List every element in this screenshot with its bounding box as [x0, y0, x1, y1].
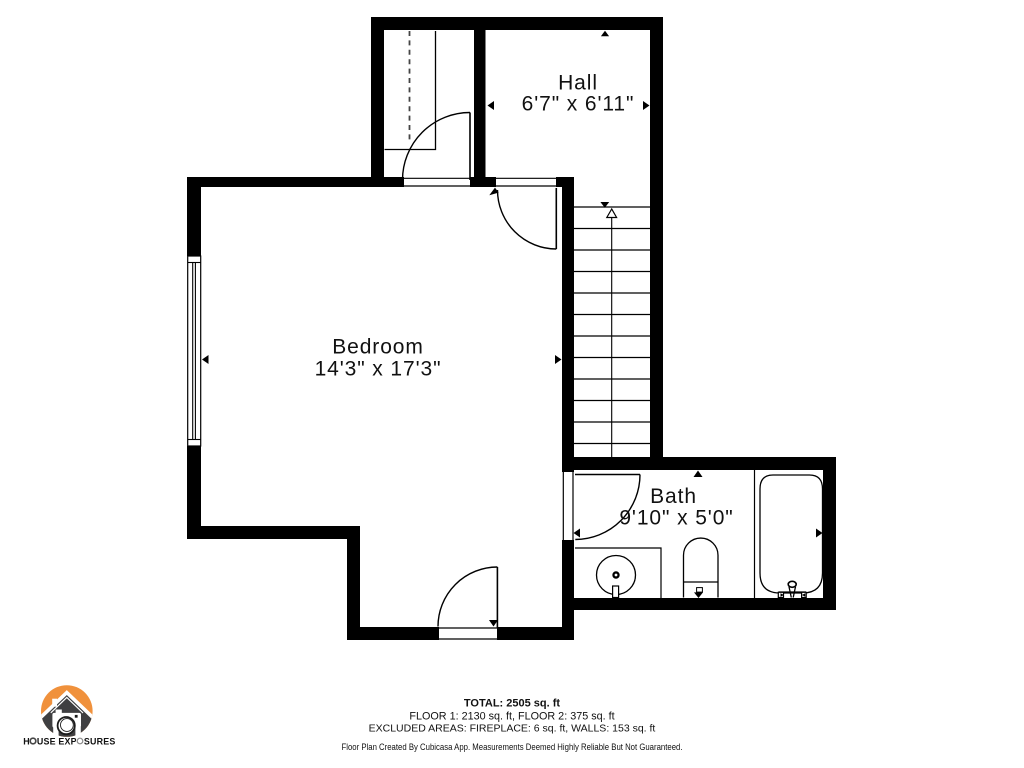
svg-text:Hall: Hall — [558, 72, 598, 95]
svg-text:FLOOR 1: 2130 sq. ft, FLOOR 2:: FLOOR 1: 2130 sq. ft, FLOOR 2: 375 sq. f… — [409, 710, 614, 722]
svg-text:Bedroom: Bedroom — [332, 336, 424, 359]
svg-text:EXCLUDED AREAS: FIREPLACE: 6 s: EXCLUDED AREAS: FIREPLACE: 6 sq. ft, WAL… — [369, 722, 656, 734]
svg-text:9'10" x 5'0": 9'10" x 5'0" — [619, 507, 733, 530]
svg-text:Bath: Bath — [650, 485, 697, 508]
svg-text:TOTAL: 2505 sq. ft: TOTAL: 2505 sq. ft — [464, 698, 561, 710]
svg-text:14'3" x 17'3": 14'3" x 17'3" — [315, 357, 442, 380]
svg-text:Floor Plan Created By Cubicasa: Floor Plan Created By Cubicasa App. Meas… — [342, 742, 683, 752]
svg-text:6'7" x 6'11": 6'7" x 6'11" — [522, 93, 635, 116]
